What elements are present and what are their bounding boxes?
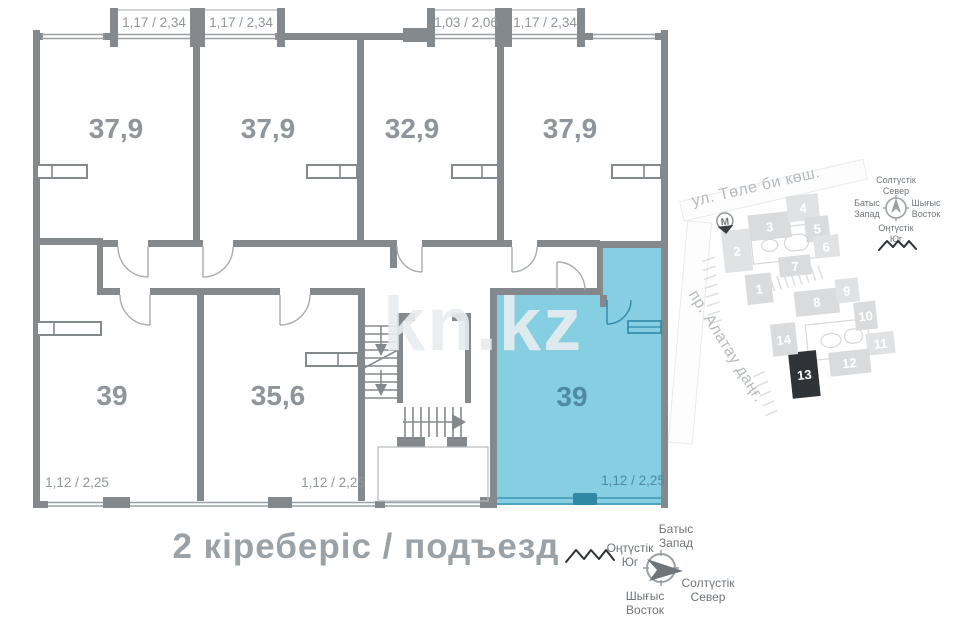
dimension-label: 1,12 / 2,25 bbox=[45, 475, 109, 490]
compass-east-kk: Шығыс bbox=[912, 198, 941, 208]
compass-north-ru: Север bbox=[691, 590, 726, 604]
room-area: 37,9 bbox=[241, 113, 296, 144]
plan-compass: Оңтүстік Юг Батыс Запад Солтүстік Север … bbox=[566, 522, 735, 617]
room-area: 35,6 bbox=[251, 380, 306, 411]
compass-east-ru: Восток bbox=[626, 603, 665, 617]
room-area: 37,9 bbox=[89, 113, 144, 144]
map-building-number: 2 bbox=[733, 243, 742, 259]
map-building-number: 9 bbox=[842, 283, 851, 299]
compass-west-kk: Батыс bbox=[659, 522, 693, 536]
room-area: 39 bbox=[96, 380, 127, 411]
compass-south-kk: Оңтүстік bbox=[607, 541, 655, 555]
dimension-label: 1,12 / 2,25 bbox=[301, 475, 365, 490]
room-area: 32,9 bbox=[385, 113, 440, 144]
compass-east-kk: Шығыс bbox=[626, 589, 665, 603]
dimension-label: 1,17 / 2,34 bbox=[513, 15, 577, 30]
compass-north-kk: Солтүстік bbox=[876, 175, 916, 185]
map-building-number: 8 bbox=[812, 294, 821, 310]
dimension-label: 1,17 / 2,34 bbox=[209, 15, 273, 30]
highlighted-apartment-region[interactable] bbox=[497, 241, 661, 505]
map-building-number: 10 bbox=[858, 308, 874, 324]
dimension-label: 1,17 / 2,34 bbox=[122, 15, 186, 30]
compass-west-ru: Запад bbox=[854, 209, 880, 219]
compass-south-kk: Оңтүстік bbox=[878, 223, 913, 233]
map-building-number: 1 bbox=[755, 281, 764, 297]
site-map-compass: Солтүстік Север Батыс Запад Шығыс Восток… bbox=[854, 175, 941, 250]
compass-needle-icon bbox=[891, 198, 901, 213]
compass-west-kk: Батыс bbox=[854, 198, 880, 208]
compass-east-ru: Восток bbox=[912, 209, 941, 219]
map-building-number: 12 bbox=[841, 355, 857, 371]
highlighted-dimension-label: 1,12 / 2,25 bbox=[601, 473, 665, 488]
entrance-caption: 2 кіреберіс / подъезд bbox=[172, 527, 559, 566]
map-building-number: 14 bbox=[776, 332, 793, 349]
highlighted-room-area: 39 bbox=[556, 381, 587, 412]
map-building-number: 5 bbox=[813, 221, 822, 237]
room-area: 37,9 bbox=[543, 113, 598, 144]
floor-plan-image: 37,9 37,9 32,9 37,9 39 35,6 39 1,17 / 2,… bbox=[0, 0, 965, 635]
map-building-number: 6 bbox=[822, 239, 831, 255]
compass-south-ru: Юг bbox=[622, 555, 639, 569]
mountains-icon bbox=[879, 241, 916, 250]
compass-north-ru: Север bbox=[883, 186, 909, 196]
watermark: kn.kz bbox=[383, 282, 583, 367]
map-building-number: 11 bbox=[873, 336, 888, 352]
compass-needle-icon bbox=[647, 559, 683, 581]
map-building-number: 3 bbox=[765, 219, 774, 235]
map-building-number-highlighted: 13 bbox=[796, 367, 812, 383]
map-building-number: 7 bbox=[791, 259, 800, 275]
compass-north-kk: Солтүстік bbox=[682, 576, 736, 590]
compass-west-ru: Запад bbox=[659, 536, 693, 550]
dimension-label: 1,03 / 2,06 bbox=[434, 15, 498, 30]
floor-plan-page: 37,9 37,9 32,9 37,9 39 35,6 39 1,17 / 2,… bbox=[0, 0, 965, 635]
